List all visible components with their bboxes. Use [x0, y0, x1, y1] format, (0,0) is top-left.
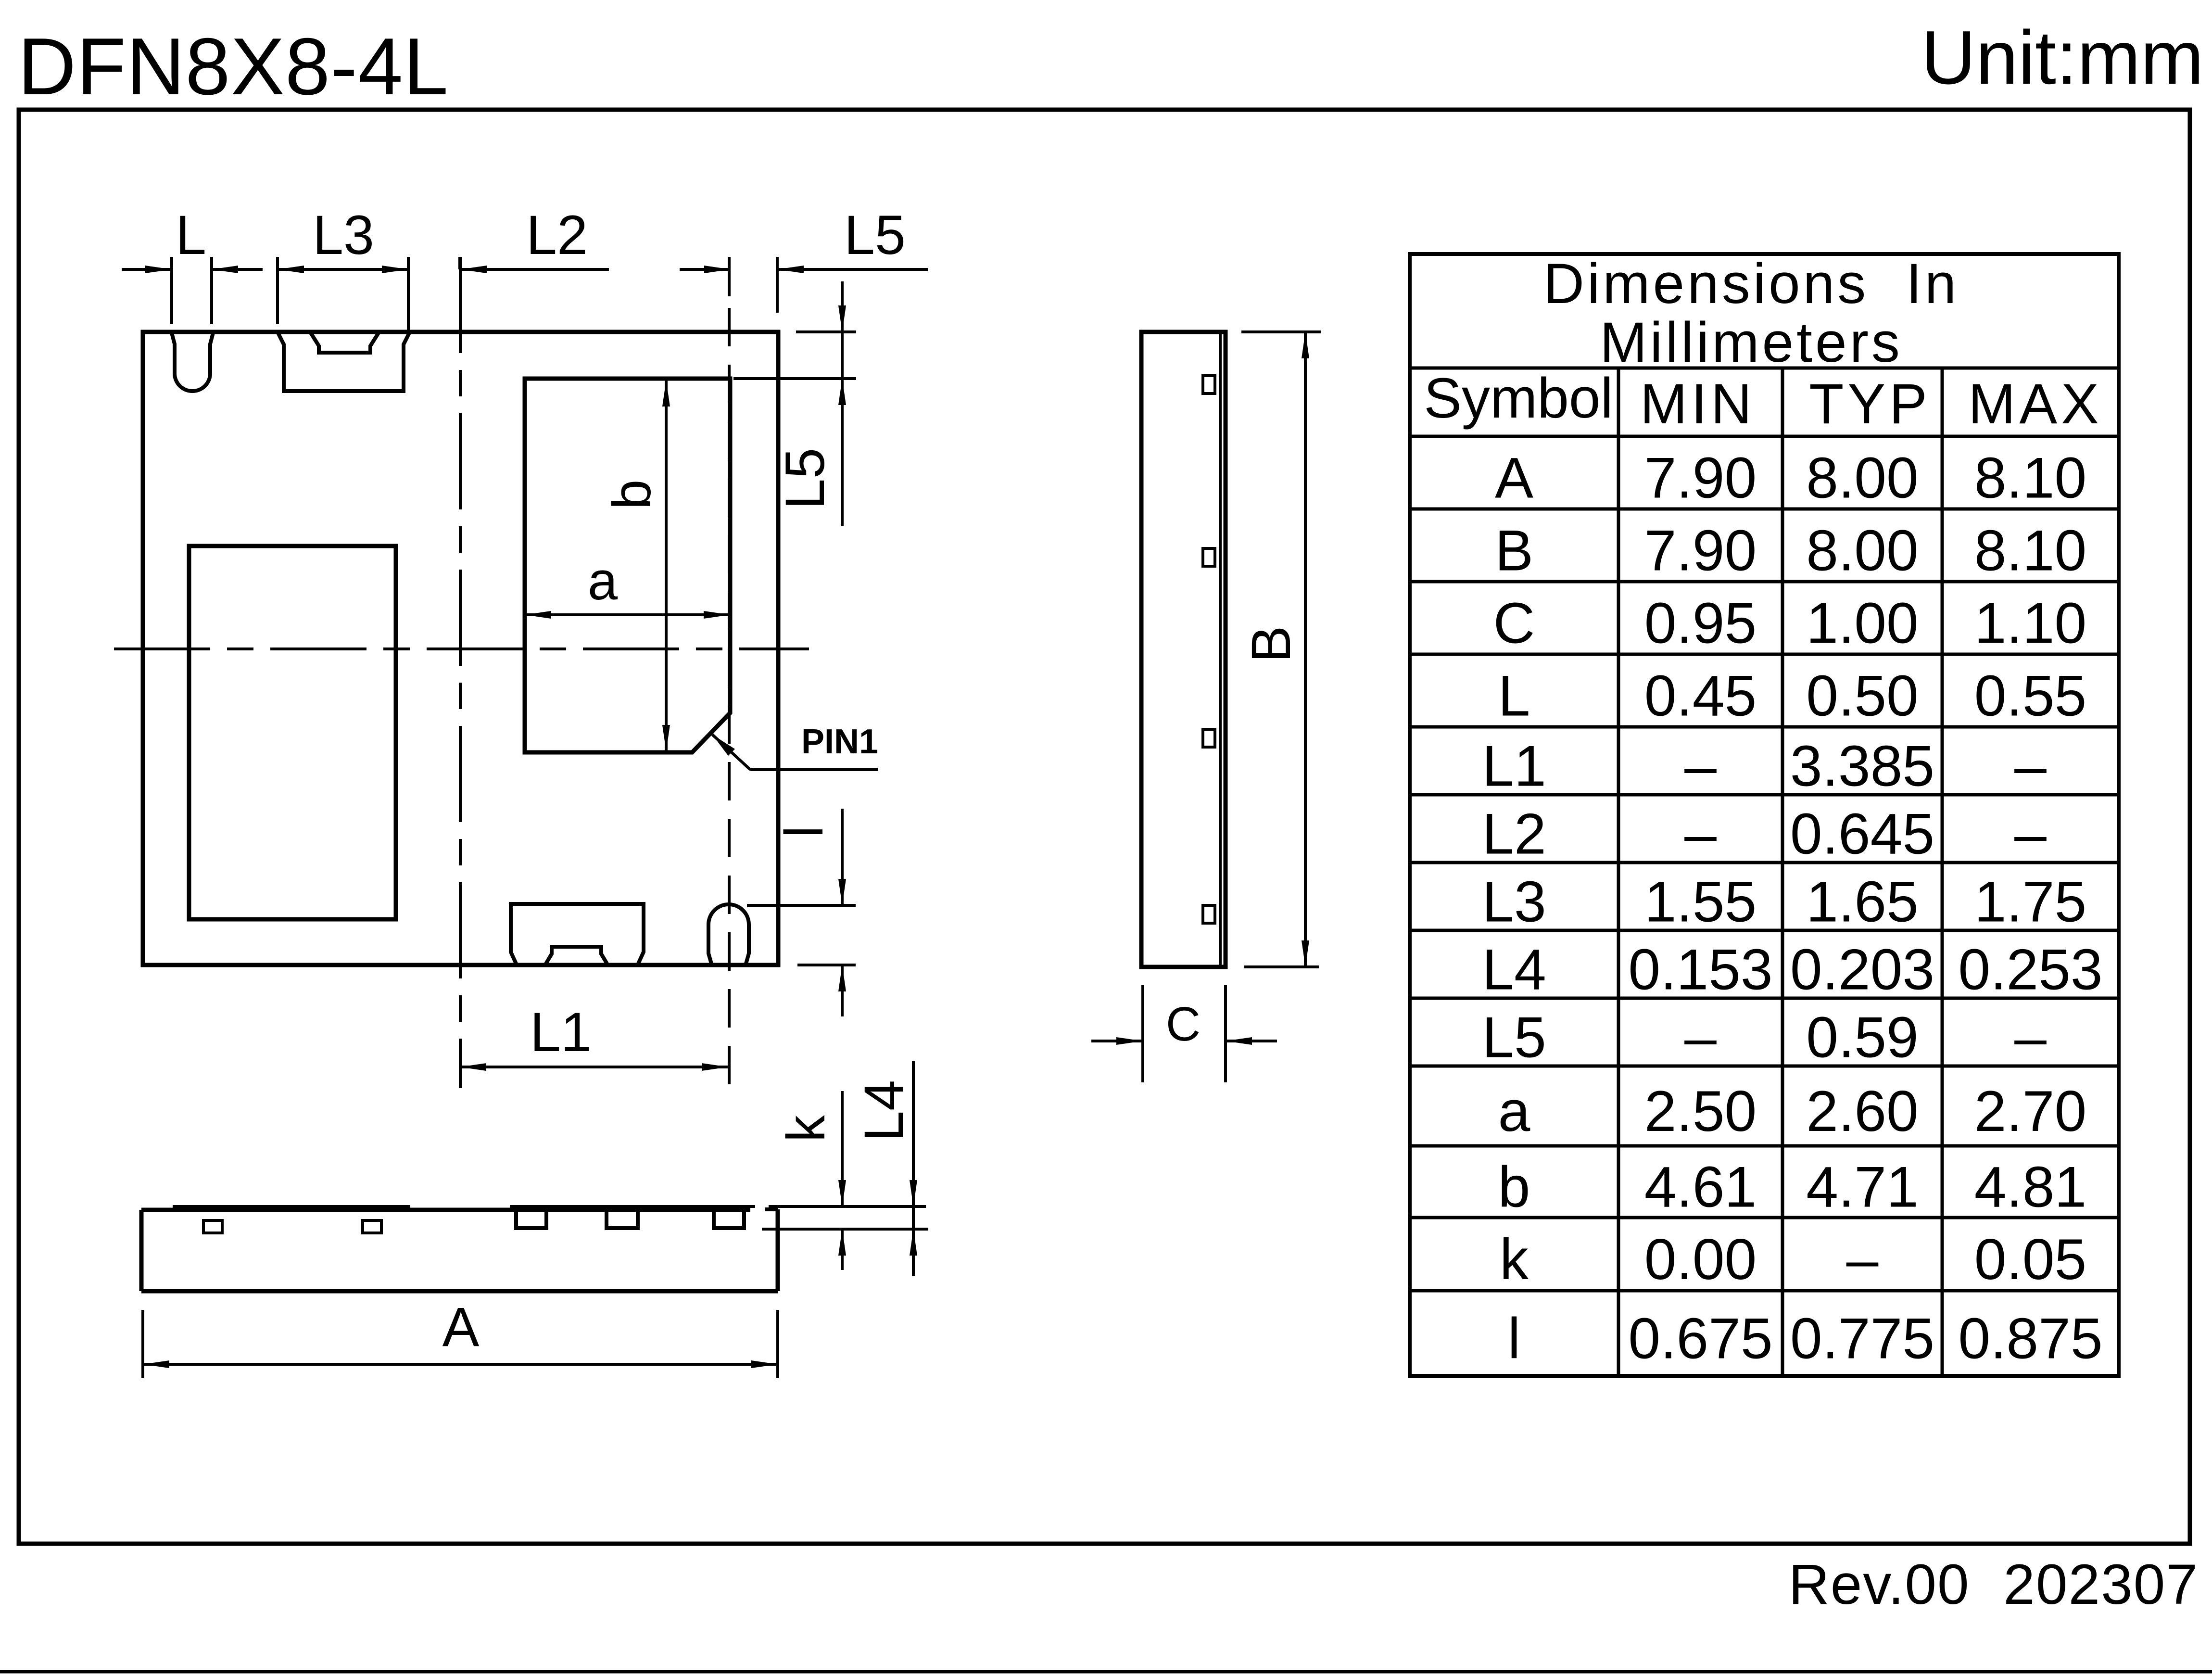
svg-text:4.71: 4.71 — [1806, 1155, 1919, 1219]
svg-text:7.90: 7.90 — [1644, 519, 1757, 583]
svg-text:4.61: 4.61 — [1644, 1155, 1757, 1219]
svg-text:MIN: MIN — [1640, 372, 1756, 436]
svg-text:8.00: 8.00 — [1806, 446, 1919, 510]
svg-text:DFN8X8-4L: DFN8X8-4L — [18, 21, 449, 112]
svg-text:1.75: 1.75 — [1974, 870, 2087, 934]
svg-text:–: – — [2014, 734, 2047, 799]
svg-text:C: C — [1493, 591, 1535, 656]
svg-text:k: k — [776, 1115, 836, 1142]
svg-text:b: b — [602, 480, 662, 509]
svg-text:0.59: 0.59 — [1806, 1005, 1919, 1070]
svg-text:L3: L3 — [1482, 870, 1546, 934]
svg-text:0.05: 0.05 — [1974, 1227, 2087, 1292]
svg-text:l: l — [774, 826, 834, 838]
svg-text:L3: L3 — [313, 204, 374, 266]
svg-text:L1: L1 — [530, 1002, 592, 1063]
svg-text:l: l — [1508, 1307, 1521, 1371]
svg-text:–: – — [1684, 802, 1717, 866]
svg-text:L: L — [1498, 664, 1530, 728]
svg-text:1.10: 1.10 — [1974, 591, 2087, 656]
svg-text:0.645: 0.645 — [1790, 802, 1934, 866]
svg-text:PIN1: PIN1 — [801, 723, 878, 761]
svg-text:–: – — [1846, 1227, 1879, 1292]
svg-text:0.50: 0.50 — [1806, 664, 1919, 728]
svg-text:2.60: 2.60 — [1806, 1079, 1919, 1143]
svg-text:L: L — [176, 204, 206, 266]
svg-text:0.775: 0.775 — [1790, 1307, 1934, 1371]
svg-text:1.65: 1.65 — [1806, 870, 1919, 934]
svg-text:1.00: 1.00 — [1806, 591, 1919, 656]
svg-text:4.81: 4.81 — [1974, 1155, 2087, 1219]
svg-text:Rev.00 202307: Rev.00 202307 — [1789, 1553, 2199, 1616]
svg-text:8.10: 8.10 — [1974, 446, 2087, 510]
svg-text:8.10: 8.10 — [1974, 519, 2087, 583]
svg-text:0.675: 0.675 — [1628, 1307, 1772, 1371]
svg-text:0.95: 0.95 — [1644, 591, 1757, 656]
svg-text:TYP: TYP — [1809, 372, 1931, 436]
svg-text:Millimeters: Millimeters — [1600, 311, 1903, 374]
svg-text:1.55: 1.55 — [1644, 870, 1757, 934]
svg-text:0.153: 0.153 — [1628, 938, 1772, 1002]
svg-text:L2: L2 — [526, 204, 588, 266]
svg-text:Unit:mm: Unit:mm — [1921, 15, 2204, 100]
svg-text:C: C — [1166, 997, 1201, 1051]
svg-text:0.55: 0.55 — [1974, 664, 2087, 728]
svg-text:–: – — [2014, 802, 2047, 866]
svg-text:A: A — [442, 1296, 480, 1358]
svg-text:0.00: 0.00 — [1644, 1227, 1757, 1292]
svg-text:L4: L4 — [1482, 938, 1546, 1002]
svg-text:0.45: 0.45 — [1644, 664, 1757, 728]
svg-text:–: – — [2014, 1005, 2047, 1070]
svg-text:A: A — [1495, 446, 1533, 510]
svg-text:a: a — [1498, 1079, 1530, 1143]
svg-text:2.50: 2.50 — [1644, 1079, 1757, 1143]
svg-text:0.875: 0.875 — [1958, 1307, 2102, 1371]
svg-text:2.70: 2.70 — [1974, 1079, 2087, 1143]
svg-text:B: B — [1495, 519, 1533, 583]
svg-text:L4: L4 — [853, 1080, 915, 1142]
svg-text:MAX: MAX — [1968, 372, 2103, 436]
svg-text:b: b — [1498, 1155, 1530, 1219]
svg-text:L5: L5 — [844, 204, 906, 266]
svg-text:7.90: 7.90 — [1644, 446, 1757, 510]
svg-text:L5: L5 — [774, 448, 836, 509]
svg-text:0.203: 0.203 — [1790, 938, 1934, 1002]
svg-text:Symbol: Symbol — [1424, 367, 1613, 430]
svg-text:–: – — [1684, 734, 1717, 799]
svg-text:L2: L2 — [1482, 802, 1546, 866]
svg-text:Dimensions In: Dimensions In — [1543, 252, 1959, 316]
svg-text:B: B — [1240, 626, 1302, 663]
svg-text:a: a — [588, 551, 618, 611]
svg-text:–: – — [1684, 1005, 1717, 1070]
svg-text:3.385: 3.385 — [1790, 734, 1934, 799]
svg-text:8.00: 8.00 — [1806, 519, 1919, 583]
svg-text:L1: L1 — [1482, 734, 1546, 799]
svg-text:k: k — [1500, 1227, 1529, 1292]
svg-text:L5: L5 — [1482, 1005, 1546, 1070]
svg-text:0.253: 0.253 — [1958, 938, 2102, 1002]
